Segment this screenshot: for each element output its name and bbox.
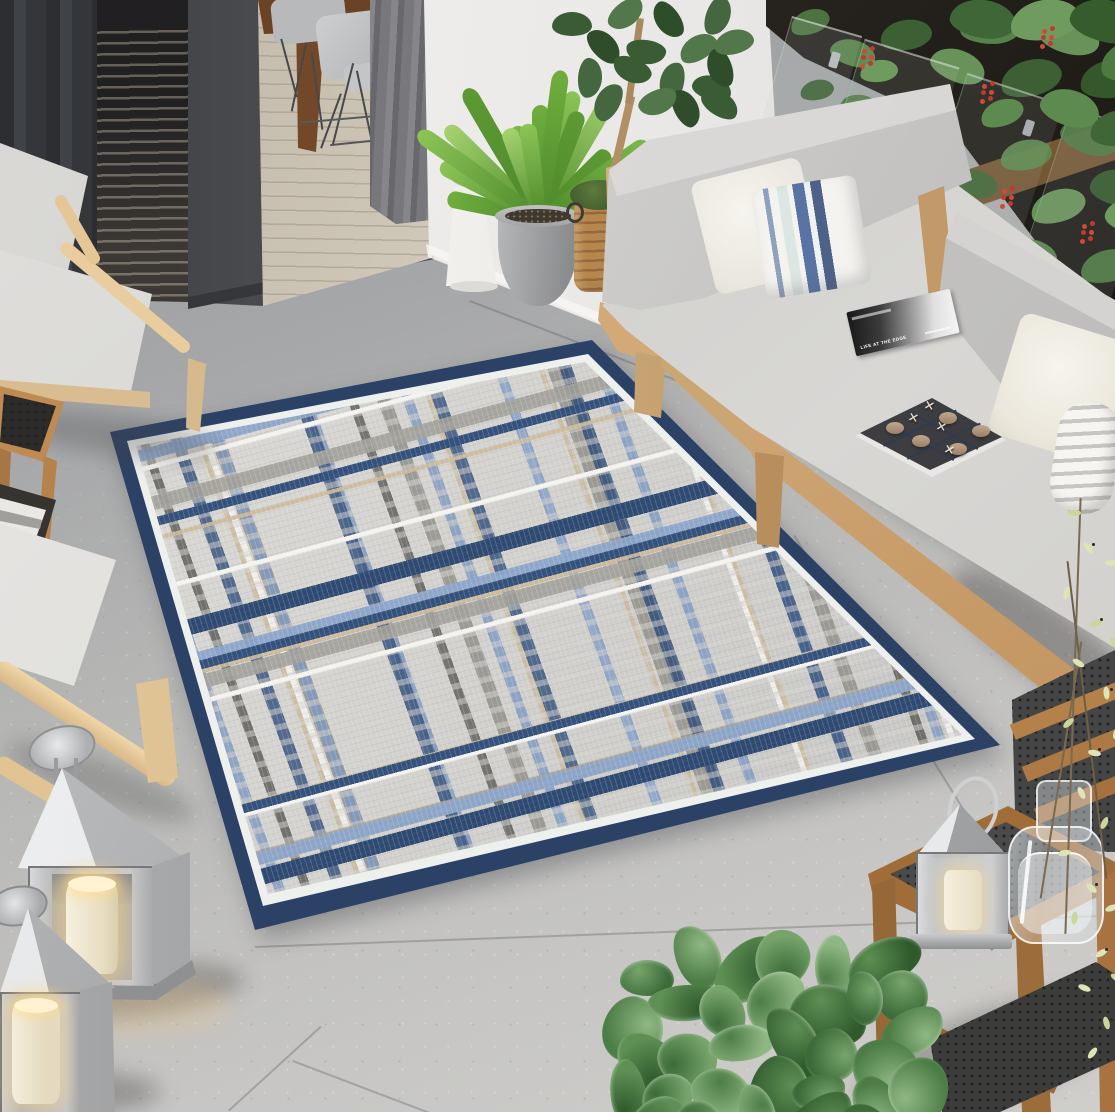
game-piece-o [972, 425, 990, 437]
berry [990, 81, 995, 86]
branch-leaf [1094, 947, 1108, 959]
chair-wire-leg [356, 71, 374, 148]
branch-leaf [1062, 586, 1071, 600]
branch-seed [1095, 883, 1098, 886]
sofa-left-post [0, 0, 1115, 1112]
foliage-leaf [1007, 234, 1061, 274]
big-leaf [775, 1081, 864, 1112]
berry [929, 245, 934, 250]
speaker-top [452, 169, 486, 187]
rug-inner-line [0, 0, 1115, 1112]
foliage-leaf [948, 167, 999, 201]
berry [868, 61, 873, 66]
glass-clamp [924, 87, 937, 105]
sofa-back-right-top [0, 0, 1115, 1112]
game-piece-x: ✕ [919, 397, 938, 416]
glass-clamp [770, 120, 778, 134]
berry [870, 46, 875, 51]
fig-leaf [635, 83, 681, 121]
plant-leaf [500, 126, 548, 221]
branch-leaf [1089, 618, 1103, 628]
big-leaf [865, 959, 940, 1034]
table-top-frame [0, 0, 1115, 1112]
lantern-roof-right [0, 0, 1115, 1112]
foliage-leaf [838, 92, 884, 123]
big-leaf [746, 922, 818, 997]
fig-trunk-upper [625, 18, 644, 104]
berry [920, 254, 925, 259]
berry [1049, 35, 1054, 40]
berry [922, 239, 927, 244]
chair-leg [0, 0, 1115, 1112]
sofa-back-left [0, 0, 1115, 1112]
rowan-foliage-rear [0, 0, 1115, 1112]
glass-vase [0, 0, 1115, 1112]
table-top-shelf [0, 0, 1115, 1112]
plant-leaf [533, 109, 588, 221]
plant-leaf [446, 190, 542, 226]
berry [1001, 195, 1006, 200]
plant-leaf [532, 105, 549, 218]
berry [928, 251, 933, 256]
berry [908, 131, 913, 136]
glass-panel [796, 39, 960, 295]
lantern-roof-left [0, 0, 1115, 1112]
branch-leaf [1104, 903, 1115, 913]
table-lantern-glass [928, 858, 994, 934]
chair-wire-leg [280, 39, 297, 97]
dining-table-leg-2 [0, 0, 1115, 1112]
berry [921, 245, 926, 250]
wall-baseboard [0, 0, 1115, 1112]
table-lantern-handle [941, 771, 1005, 847]
leafy-plant [0, 0, 1115, 1112]
big-leaf [703, 925, 795, 1017]
table-lantern-body [916, 852, 1010, 942]
big-leaf [706, 1021, 776, 1066]
foliage-leaf [1103, 446, 1115, 478]
sofa-seat [0, 0, 1115, 1112]
foliage-leaf [1037, 14, 1103, 60]
berry [1008, 201, 1013, 206]
dining-chair-shell [270, 0, 348, 46]
vase-neck [1036, 780, 1092, 842]
big-leaf [756, 997, 834, 1087]
foliage-leaf [918, 116, 962, 148]
branch-leaf [1058, 849, 1072, 857]
white-pillow-left [690, 156, 827, 296]
foliage-leaf [1088, 106, 1115, 150]
chair-wire-bar [330, 136, 410, 146]
fig-leaf [582, 23, 627, 69]
big-leaf [604, 1022, 697, 1111]
foliage-leaf [1077, 244, 1115, 289]
fig-leaf [609, 51, 655, 89]
big-leaf [665, 918, 731, 996]
table-lantern-candle [944, 870, 982, 930]
sofa-front-rail-left [0, 0, 1115, 1112]
berry [1048, 41, 1053, 46]
berry [860, 64, 865, 69]
book-title: LIFE AT THE EDGE [860, 335, 907, 350]
sofa-corner-post [0, 0, 1115, 1112]
corner-chair-slat [1022, 718, 1115, 782]
tictactoe-board [0, 0, 1115, 1112]
table-leg-right [0, 0, 1115, 1112]
fig-leaf [552, 12, 592, 36]
plant-leaf [537, 157, 645, 225]
dining-table-top [0, 0, 1115, 1112]
foliage-leaf [787, 4, 833, 40]
berry-clusters [0, 0, 1115, 1112]
plant-leaf [535, 146, 615, 224]
foliage-leaf [878, 145, 922, 176]
berry [980, 99, 985, 104]
branch-leaf [1071, 911, 1078, 925]
berry [862, 49, 867, 54]
berry [869, 55, 874, 60]
foliage-leaf [997, 135, 1054, 175]
berry [900, 134, 905, 139]
berry [854, 185, 859, 190]
fig-leaf [656, 60, 688, 104]
plant-leaf [440, 121, 546, 224]
foliage-leaf [798, 77, 835, 104]
berry [1002, 189, 1007, 194]
sofa: LIFE AT THE EDGE ✕✕✕✕ [0, 0, 1115, 1112]
armrest-wood [58, 240, 193, 356]
green-plant [0, 0, 1115, 1112]
rowan-foliage-front [0, 0, 1115, 1112]
gray-curtain [0, 0, 1115, 1112]
foliage-leaf [960, 10, 1020, 44]
berry [1009, 195, 1014, 200]
plant-leaf [508, 124, 549, 220]
floor-seam [228, 1026, 321, 1111]
armchair1-shadow [3, 400, 221, 470]
sofa-back-left-top [0, 0, 1115, 1112]
table-lower-shelf [0, 0, 1115, 1112]
berry [988, 96, 993, 101]
branch-leaf [1088, 749, 1102, 757]
big-leaf [681, 1056, 765, 1112]
glass-panel [735, 16, 862, 235]
chair-front-rail [0, 0, 1115, 1112]
table-leg [0, 0, 1115, 1112]
vase-water [1018, 852, 1092, 934]
branch-leaf [1085, 881, 1099, 894]
corner-chair-panel [0, 0, 1115, 1112]
floor-speckles [0, 0, 1115, 1112]
striped-bolster [1046, 398, 1115, 519]
big-leaf [611, 1084, 696, 1112]
berry [1081, 230, 1086, 235]
berry [1089, 230, 1094, 235]
foliage-leaf [1026, 182, 1089, 230]
plant-leaf [532, 89, 582, 220]
fig-leaf [625, 37, 668, 66]
fig-leaf [697, 83, 744, 125]
wicker-basket [574, 196, 626, 292]
branch-leaf [1105, 560, 1115, 566]
big-leaf [666, 1096, 729, 1112]
glass-balustrade [0, 0, 1115, 1112]
foliage-leaf [977, 93, 1027, 132]
glass-panel [886, 73, 1064, 355]
foliage-leaf [948, 0, 1019, 42]
foliage-leaf [878, 16, 934, 55]
cone-speaker [0, 0, 1115, 1112]
armchair2-shadow [0, 727, 201, 837]
interior-room [0, 0, 1115, 1112]
dining-chair-seat [343, 58, 412, 92]
foliage-leaf [1097, 294, 1115, 338]
dining-table-leg [0, 0, 1115, 1112]
lantern-side [0, 0, 1115, 1112]
plant-leaf [536, 136, 653, 225]
berry [902, 119, 907, 124]
berry [861, 55, 866, 60]
berry [1080, 239, 1085, 244]
big-leaf [814, 934, 852, 1001]
foliage-leaf [996, 53, 1065, 104]
lantern-candle [66, 882, 118, 974]
candle-glow-floor [40, 975, 230, 1035]
foliage-leaf [1056, 112, 1115, 162]
big-leaf [783, 975, 875, 1055]
branch-leaf [1099, 816, 1110, 830]
door-curtain-glass [0, 0, 1115, 1112]
branch-seed [1098, 748, 1101, 751]
pot-rim [495, 205, 581, 227]
big-leaf [844, 969, 885, 1026]
berry [989, 90, 994, 95]
door-glass-panel [0, 0, 1115, 1112]
plant-leaf [414, 126, 546, 225]
big-leaf [620, 960, 674, 996]
rug-border [0, 0, 1115, 1112]
fig-leaf [666, 85, 706, 132]
striped-pillow [750, 174, 872, 299]
branch-seed [1105, 948, 1108, 951]
foliage-leaf [1102, 195, 1115, 239]
rug-pattern [0, 0, 1115, 1112]
patio-floor [0, 0, 1115, 1112]
berry [1050, 26, 1055, 31]
foliage-leaf [827, 34, 878, 71]
dark-backdrop [0, 0, 1115, 1112]
game-piece-o [939, 412, 957, 424]
white-pillow-right [986, 311, 1115, 467]
foliage-leaf [1007, 0, 1083, 46]
lantern-side [0, 0, 1115, 1112]
floor-seam [255, 914, 1115, 947]
glass-panel [978, 106, 1115, 423]
table-leg-mid [0, 0, 1115, 1112]
armrest-wood-upper [53, 193, 102, 267]
door-glass-reflection [0, 0, 1115, 1112]
plant-leaf [532, 69, 570, 219]
sofa-back-right [0, 0, 1115, 1112]
branch-seed [1108, 818, 1111, 821]
sofa-shadow [660, 270, 1090, 614]
chair-wire-leg [395, 84, 403, 146]
side-table-left [0, 0, 1115, 1112]
berry [1082, 224, 1087, 229]
fig-leaf [647, 0, 690, 43]
berry [930, 236, 935, 241]
wood-beam [0, 0, 1115, 1112]
plant-leaf [459, 85, 548, 223]
table-right-shadow [843, 969, 1115, 1112]
door-track [0, 0, 1115, 1112]
berry [855, 179, 860, 184]
floor-seams [0, 0, 1115, 1112]
table-leg-front [0, 0, 1115, 1112]
chair-wire-leg [379, 78, 391, 148]
fig-leaf [603, 0, 649, 36]
table-leg [0, 0, 1115, 1112]
big-leaf [742, 1051, 816, 1112]
corner-chair-slat [1034, 760, 1115, 824]
berry [1000, 204, 1005, 209]
big-leaf [690, 978, 754, 1046]
table-lantern [0, 0, 1115, 1112]
fig-leaf [577, 57, 604, 99]
big-leaf [632, 1064, 701, 1112]
door-frame [0, 0, 1115, 1112]
berry [863, 176, 868, 181]
glass-clamp [828, 51, 841, 69]
berry [853, 194, 858, 199]
plant-leaf [437, 157, 545, 225]
tictactoe-baseplate [0, 0, 1115, 1112]
basket-handle [566, 202, 584, 223]
book: LIFE AT THE EDGE [846, 289, 959, 357]
armchair-top-left [0, 0, 1115, 1112]
foliage-leaf [1096, 33, 1115, 88]
berry [982, 84, 987, 89]
plant-pot [498, 214, 578, 306]
plant-leaf [533, 85, 622, 223]
berry [901, 125, 906, 130]
floor-seam [292, 1060, 429, 1112]
foliage-leaf [1066, 0, 1115, 49]
big-leaf [647, 982, 727, 1023]
fig-leaf [712, 25, 757, 59]
chair-leg [0, 0, 1115, 1112]
chair-wire-leg [311, 52, 324, 130]
foliage-leaf [1093, 396, 1115, 429]
plant-leaf [519, 123, 549, 219]
foliage-leaf [1087, 165, 1115, 211]
berry [1090, 221, 1095, 226]
berry [861, 191, 866, 196]
lantern-glass-opening [52, 874, 132, 980]
branch-seed [1100, 618, 1103, 621]
lantern-shadow-2 [0, 1070, 160, 1112]
dining-chair-shell-2 [314, 7, 403, 81]
sofa-front-leg [0, 0, 1115, 1112]
lantern-base [0, 0, 1115, 1112]
big-leaf [733, 1080, 784, 1112]
plant-leaf [539, 182, 671, 226]
rug-shadow-wrap [0, 0, 1115, 1112]
fig-leaf [689, 71, 734, 105]
sofa-leg [0, 0, 1115, 1112]
foliage-leaf [926, 41, 990, 90]
branch-leaf [1109, 972, 1115, 984]
chair-wire-bar [300, 114, 384, 123]
sofa-base-corner [0, 0, 1115, 1112]
branch-leaf [1077, 983, 1091, 993]
big-leaf [734, 959, 816, 1043]
armchair-bottom-left [0, 0, 1115, 1112]
fig-leaf [702, 45, 738, 91]
berry [1088, 236, 1093, 241]
fig-leaf [588, 79, 628, 126]
branch-leaf [1068, 510, 1081, 516]
berry [862, 185, 867, 190]
pot-soil [505, 209, 571, 223]
big-leaf [594, 989, 672, 1071]
side-table-right [0, 0, 1115, 1112]
foliage-leaf [901, 86, 956, 132]
branch-leaf [1062, 716, 1076, 729]
foliage-leaf [859, 57, 900, 84]
branch-leaf [1076, 786, 1087, 800]
basket-moss [570, 180, 628, 210]
foliage-leaf [939, 227, 982, 256]
branch-leaf [1082, 541, 1095, 555]
chair-wire-leg [320, 93, 342, 148]
floor-lantern-small [0, 0, 1115, 1112]
big-leaf [789, 1070, 849, 1112]
branch-seed [1092, 543, 1095, 546]
foliage-leaf [1036, 82, 1104, 133]
big-leaf [605, 1056, 654, 1112]
table-lantern-base [910, 934, 1012, 949]
floor-seam [794, 535, 965, 811]
berry [1042, 29, 1047, 34]
chair-wire-leg [332, 63, 354, 145]
big-leaf [839, 926, 928, 999]
white-wall [0, 0, 1115, 1112]
glass-clamp [1022, 119, 1036, 137]
foliage-leaf [1057, 285, 1112, 325]
floor-lantern-large [0, 0, 1115, 1112]
vase-body [1008, 826, 1104, 944]
fig-tree [0, 0, 1115, 1112]
berry [1010, 186, 1015, 191]
fig-trunk [607, 95, 635, 186]
chair-leg [0, 0, 1115, 1112]
foliage-leaf [818, 116, 856, 144]
patio-scene: LIFE AT THE EDGE ✕✕✕✕ [0, 0, 1115, 1112]
big-leaf [651, 1026, 723, 1094]
berry [909, 125, 914, 130]
foliage-leaf [1078, 56, 1115, 103]
dried-branch [0, 0, 1115, 1112]
chair-wire-leg [291, 43, 308, 112]
fig-leaf [675, 27, 722, 68]
berry [1040, 44, 1045, 49]
berry [981, 90, 986, 95]
lantern-handle-disc [0, 880, 52, 932]
magazine-stack [0, 0, 1115, 1112]
berry [1041, 35, 1046, 40]
berry [910, 116, 915, 121]
